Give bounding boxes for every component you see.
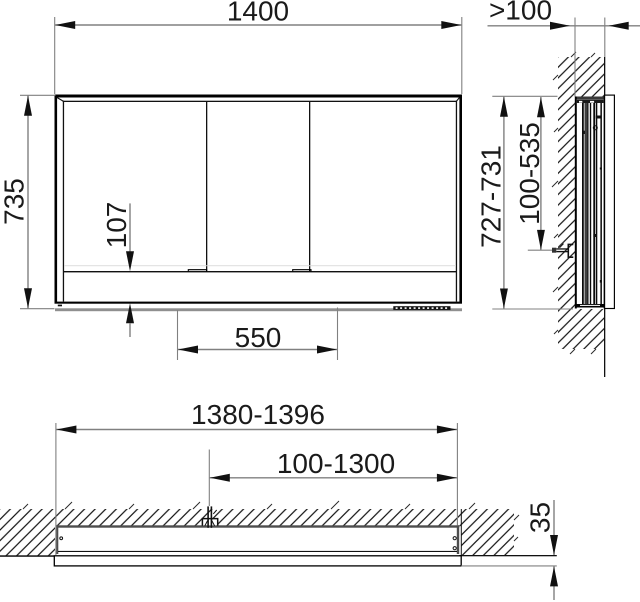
svg-text:100-1300: 100-1300 [277,448,395,479]
svg-text:1380-1396: 1380-1396 [191,399,325,430]
svg-text:107: 107 [101,202,132,249]
svg-text:550: 550 [235,322,282,353]
svg-text:100-535: 100-535 [514,122,545,225]
svg-text:35: 35 [524,502,555,533]
svg-text:1400: 1400 [227,0,289,27]
svg-text:735: 735 [0,178,30,225]
svg-text:727-731: 727-731 [476,145,507,248]
svg-text:>100: >100 [489,0,552,26]
